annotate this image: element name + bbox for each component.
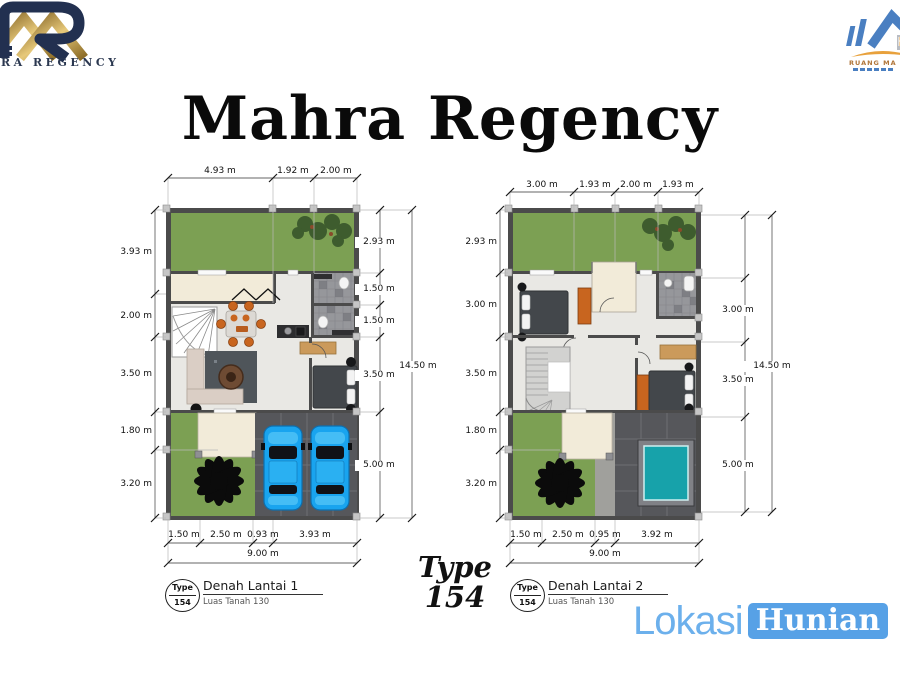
pool-deck (615, 413, 696, 516)
plan-title: Denah Lantai 2 (548, 578, 643, 593)
type-badge: Type 154 (165, 579, 200, 612)
patio (198, 413, 256, 457)
dim-label: 1.50 m (355, 284, 403, 295)
slide: Mahra Regency RA REGENCY RUANG MA 4.93 m… (0, 0, 900, 675)
type-word: Type (514, 581, 541, 596)
dim-label: 5.00 m (714, 460, 762, 471)
dim-label: 3.00 m (714, 305, 762, 316)
desk (660, 345, 696, 359)
plan-subtitle: Luas Tanah 130 (203, 597, 269, 607)
plan-subtitle: Luas Tanah 130 (548, 597, 614, 607)
bathroom (656, 273, 696, 319)
type-154-label: Type 154 (403, 552, 507, 612)
dim-label: 5.00 m (355, 460, 403, 471)
wardrobe (637, 375, 650, 411)
dim-label: 3.93 m (293, 530, 337, 541)
bathroom (311, 273, 354, 338)
mahra-regency-logo-text: RA REGENCY (1, 56, 119, 69)
dim-total-label: 9.00 m (574, 549, 636, 560)
stairs (526, 347, 570, 413)
dim-label: 3.93 m (108, 247, 152, 258)
terrace (562, 413, 612, 459)
dim-label: 1.93 m (655, 180, 701, 191)
car (308, 426, 352, 510)
type-word: Type (169, 581, 196, 596)
dim-total-label: 14.50 m (744, 361, 800, 372)
plate-divider (548, 594, 668, 595)
plan-title: Denah Lantai 1 (203, 578, 298, 593)
watermark-lokasi: Lokasi (633, 601, 743, 641)
type-154-line1: Type (403, 552, 507, 582)
dim-label: 1.80 m (453, 426, 497, 437)
dim-label: 1.93 m (572, 180, 618, 191)
type-number: 154 (166, 596, 199, 609)
type-154-line2: 154 (403, 582, 507, 612)
lokasi-hunian-watermark: Lokasi Hunian (633, 601, 888, 641)
dim-label: 3.92 m (635, 530, 679, 541)
toilet (684, 276, 694, 291)
dim-label: 2.00 m (313, 166, 359, 177)
dim-label: 3.50 m (714, 375, 762, 386)
mahra-regency-logo-icon (0, 7, 84, 58)
dim-label: 3.00 m (519, 180, 565, 191)
dim-label: 3.50 m (453, 369, 497, 380)
window (198, 270, 226, 275)
toilet (318, 316, 328, 328)
floorplan-2 (505, 205, 702, 520)
dim-label: 1.50 m (355, 316, 403, 327)
balcony (592, 262, 636, 312)
window (288, 270, 298, 275)
dim-total-label: 9.00 m (232, 549, 294, 560)
floorplan-1 (163, 205, 360, 520)
dim-label: 0.95 m (583, 530, 627, 541)
toilet (339, 277, 349, 289)
window (640, 270, 652, 275)
dim-label: 1.80 m (108, 426, 152, 437)
ruang-logo-text: RUANG MA (849, 59, 899, 67)
porch (171, 273, 275, 303)
dim-label: 2.00 m (108, 311, 152, 322)
dim-label: 1.50 m (504, 530, 548, 541)
dim-label: 3.20 m (108, 479, 152, 490)
sideboard (300, 342, 336, 354)
plate-divider (203, 594, 323, 595)
dim-label: 2.93 m (355, 237, 403, 248)
type-badge: Type 154 (510, 579, 545, 612)
page-title: Mahra Regency (0, 84, 900, 154)
dim-label: 2.93 m (453, 237, 497, 248)
sink (664, 279, 672, 287)
dim-total-label: 14.50 m (390, 361, 446, 372)
dim-label: 0.93 m (241, 530, 285, 541)
window (530, 270, 554, 275)
car (261, 426, 305, 510)
wardrobe (578, 288, 591, 324)
dim-label: 2.00 m (613, 180, 659, 191)
type-number: 154 (511, 596, 544, 609)
dim-label: 3.20 m (453, 479, 497, 490)
dim-label: 3.00 m (453, 300, 497, 311)
pool (644, 446, 688, 500)
garage (255, 413, 357, 516)
sofa (187, 389, 243, 404)
watermark-hunian: Hunian (748, 603, 889, 639)
dim-label: 3.50 m (108, 369, 152, 380)
dim-label: 4.93 m (197, 166, 243, 177)
dim-label: 1.50 m (162, 530, 206, 541)
dim-label: 1.92 m (270, 166, 316, 177)
